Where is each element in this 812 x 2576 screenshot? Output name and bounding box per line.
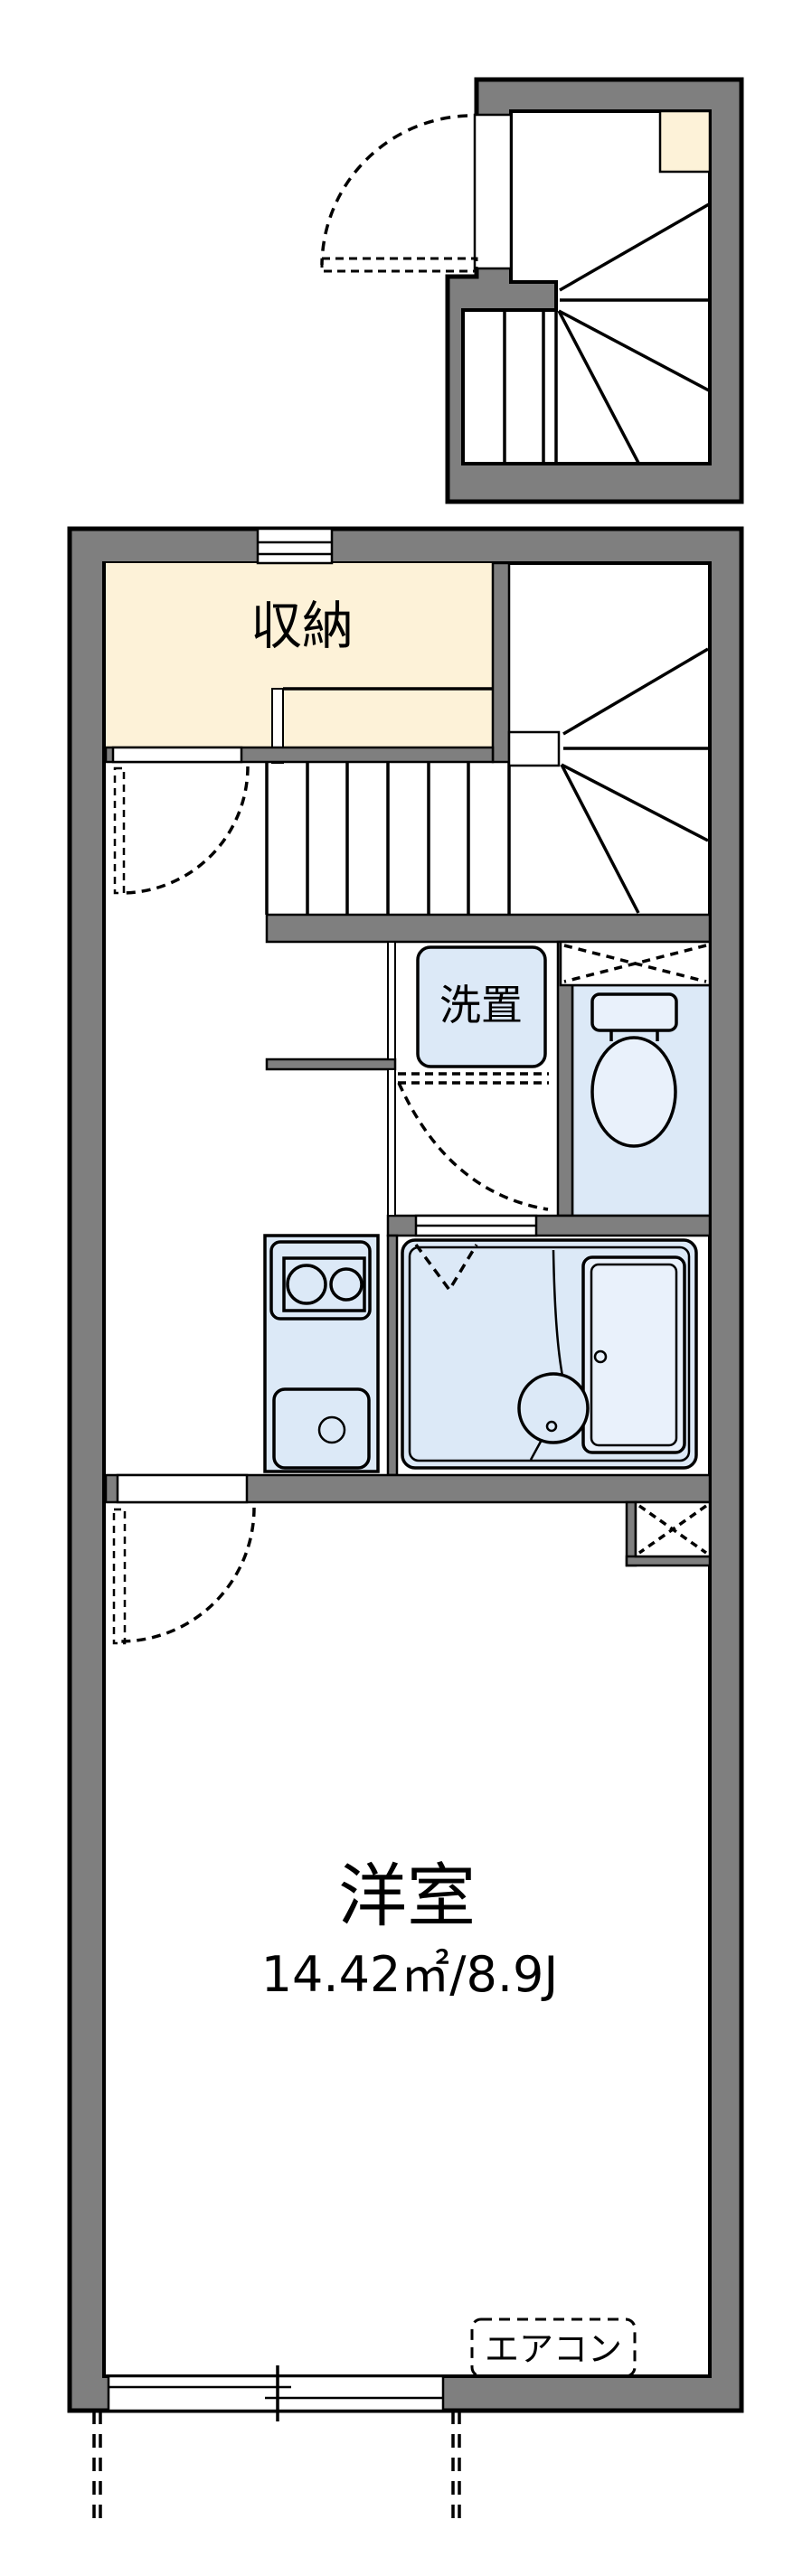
aircon-label: エアコン bbox=[485, 2329, 622, 2369]
bathroom-unit bbox=[402, 1240, 696, 1468]
overhead-shelf-box bbox=[561, 942, 710, 985]
closet-opening bbox=[113, 747, 241, 762]
kitchen-counter bbox=[265, 1236, 378, 1471]
main-floor-block: エアコン 収納 洗置 洋室 14.42㎡/8.9J bbox=[70, 529, 741, 2522]
room-name-label: 洋室 bbox=[338, 1856, 476, 1936]
bathtub-icon bbox=[583, 1257, 685, 1453]
toilet-icon bbox=[592, 994, 676, 1146]
main-inner-area bbox=[104, 563, 710, 2376]
top-window-icon bbox=[258, 529, 332, 563]
room-area-label: 14.42㎡/8.9J bbox=[261, 1946, 559, 2003]
bath-door-opening bbox=[416, 1216, 536, 1236]
entrance-door-swing-icon bbox=[322, 116, 477, 271]
pipe-space-box bbox=[636, 1502, 710, 1556]
entrance-door-opening bbox=[475, 115, 511, 268]
floor-plan-page: エアコン 収納 洗置 洋室 14.42㎡/8.9J bbox=[0, 0, 812, 2576]
floor-plan-drawing: エアコン 収納 洗置 洋室 14.42㎡/8.9J bbox=[0, 0, 812, 2576]
site-boundary-dashes bbox=[94, 2411, 459, 2522]
stair-landing bbox=[509, 732, 559, 766]
closet-label: 収納 bbox=[250, 597, 354, 656]
room-door-opening bbox=[118, 1475, 247, 1502]
upper-floor-block bbox=[322, 80, 741, 502]
entry-step-mat bbox=[660, 111, 710, 172]
washer-label: 洗置 bbox=[439, 981, 523, 1029]
